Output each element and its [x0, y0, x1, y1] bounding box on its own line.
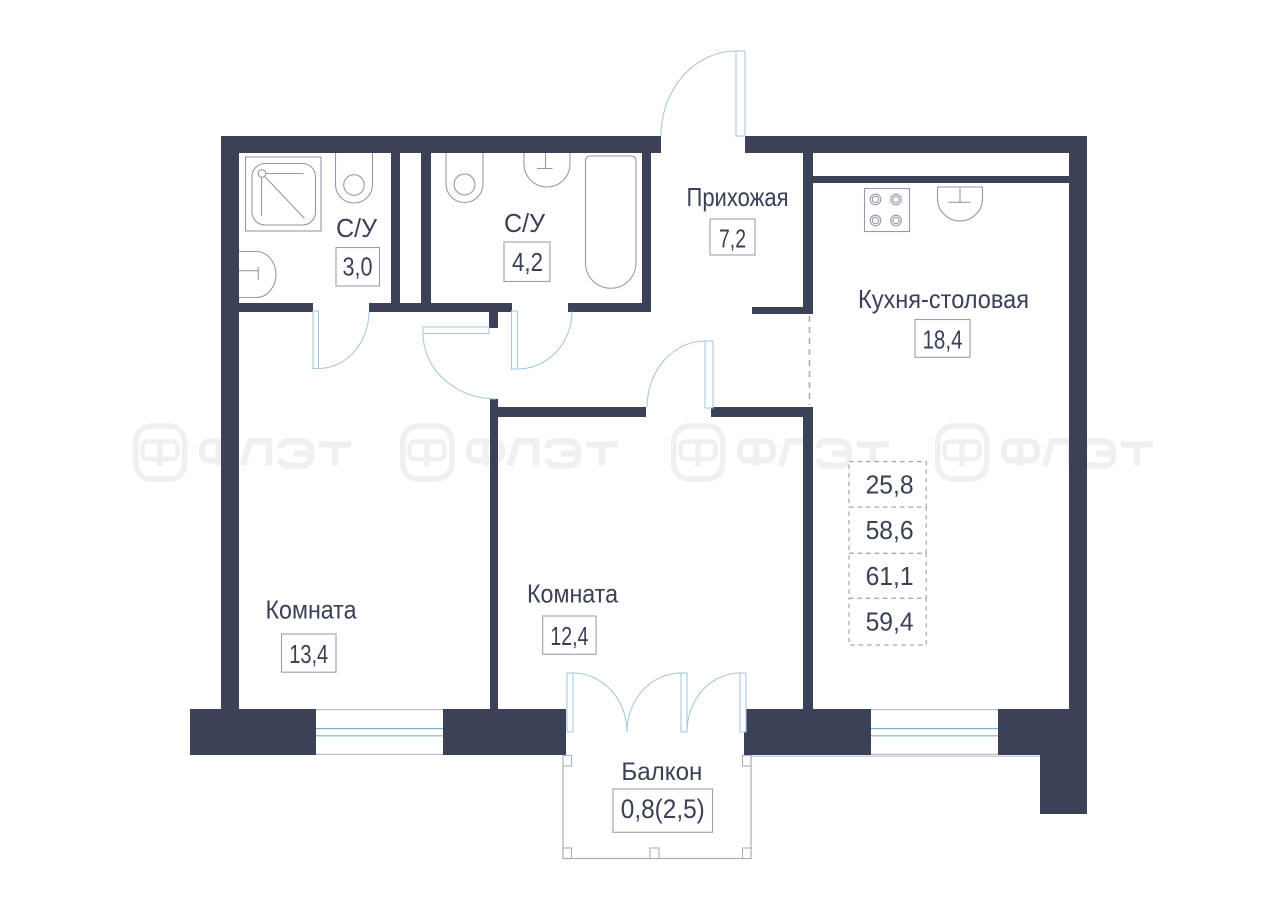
svg-text:58,6: 58,6	[866, 515, 914, 545]
svg-text:4,2: 4,2	[512, 247, 543, 277]
svg-text:Прихожая: Прихожая	[687, 182, 789, 212]
svg-text:59,4: 59,4	[866, 607, 914, 637]
svg-text:Балкон: Балкон	[621, 758, 702, 786]
svg-text:3,0: 3,0	[343, 252, 373, 282]
svg-text:С/У: С/У	[336, 213, 377, 243]
svg-text:7,2: 7,2	[719, 224, 746, 254]
svg-text:С/У: С/У	[504, 208, 545, 238]
svg-text:Кухня-столовая: Кухня-столовая	[858, 284, 1029, 314]
svg-text:25,8: 25,8	[866, 469, 914, 499]
svg-text:18,4: 18,4	[923, 325, 963, 355]
svg-text:61,1: 61,1	[866, 561, 914, 591]
svg-text:0,8(2,5): 0,8(2,5)	[621, 794, 705, 824]
svg-text:Комната: Комната	[527, 579, 618, 609]
svg-text:12,4: 12,4	[550, 621, 588, 651]
svg-text:Комната: Комната	[266, 595, 357, 625]
svg-text:13,4: 13,4	[289, 639, 328, 669]
